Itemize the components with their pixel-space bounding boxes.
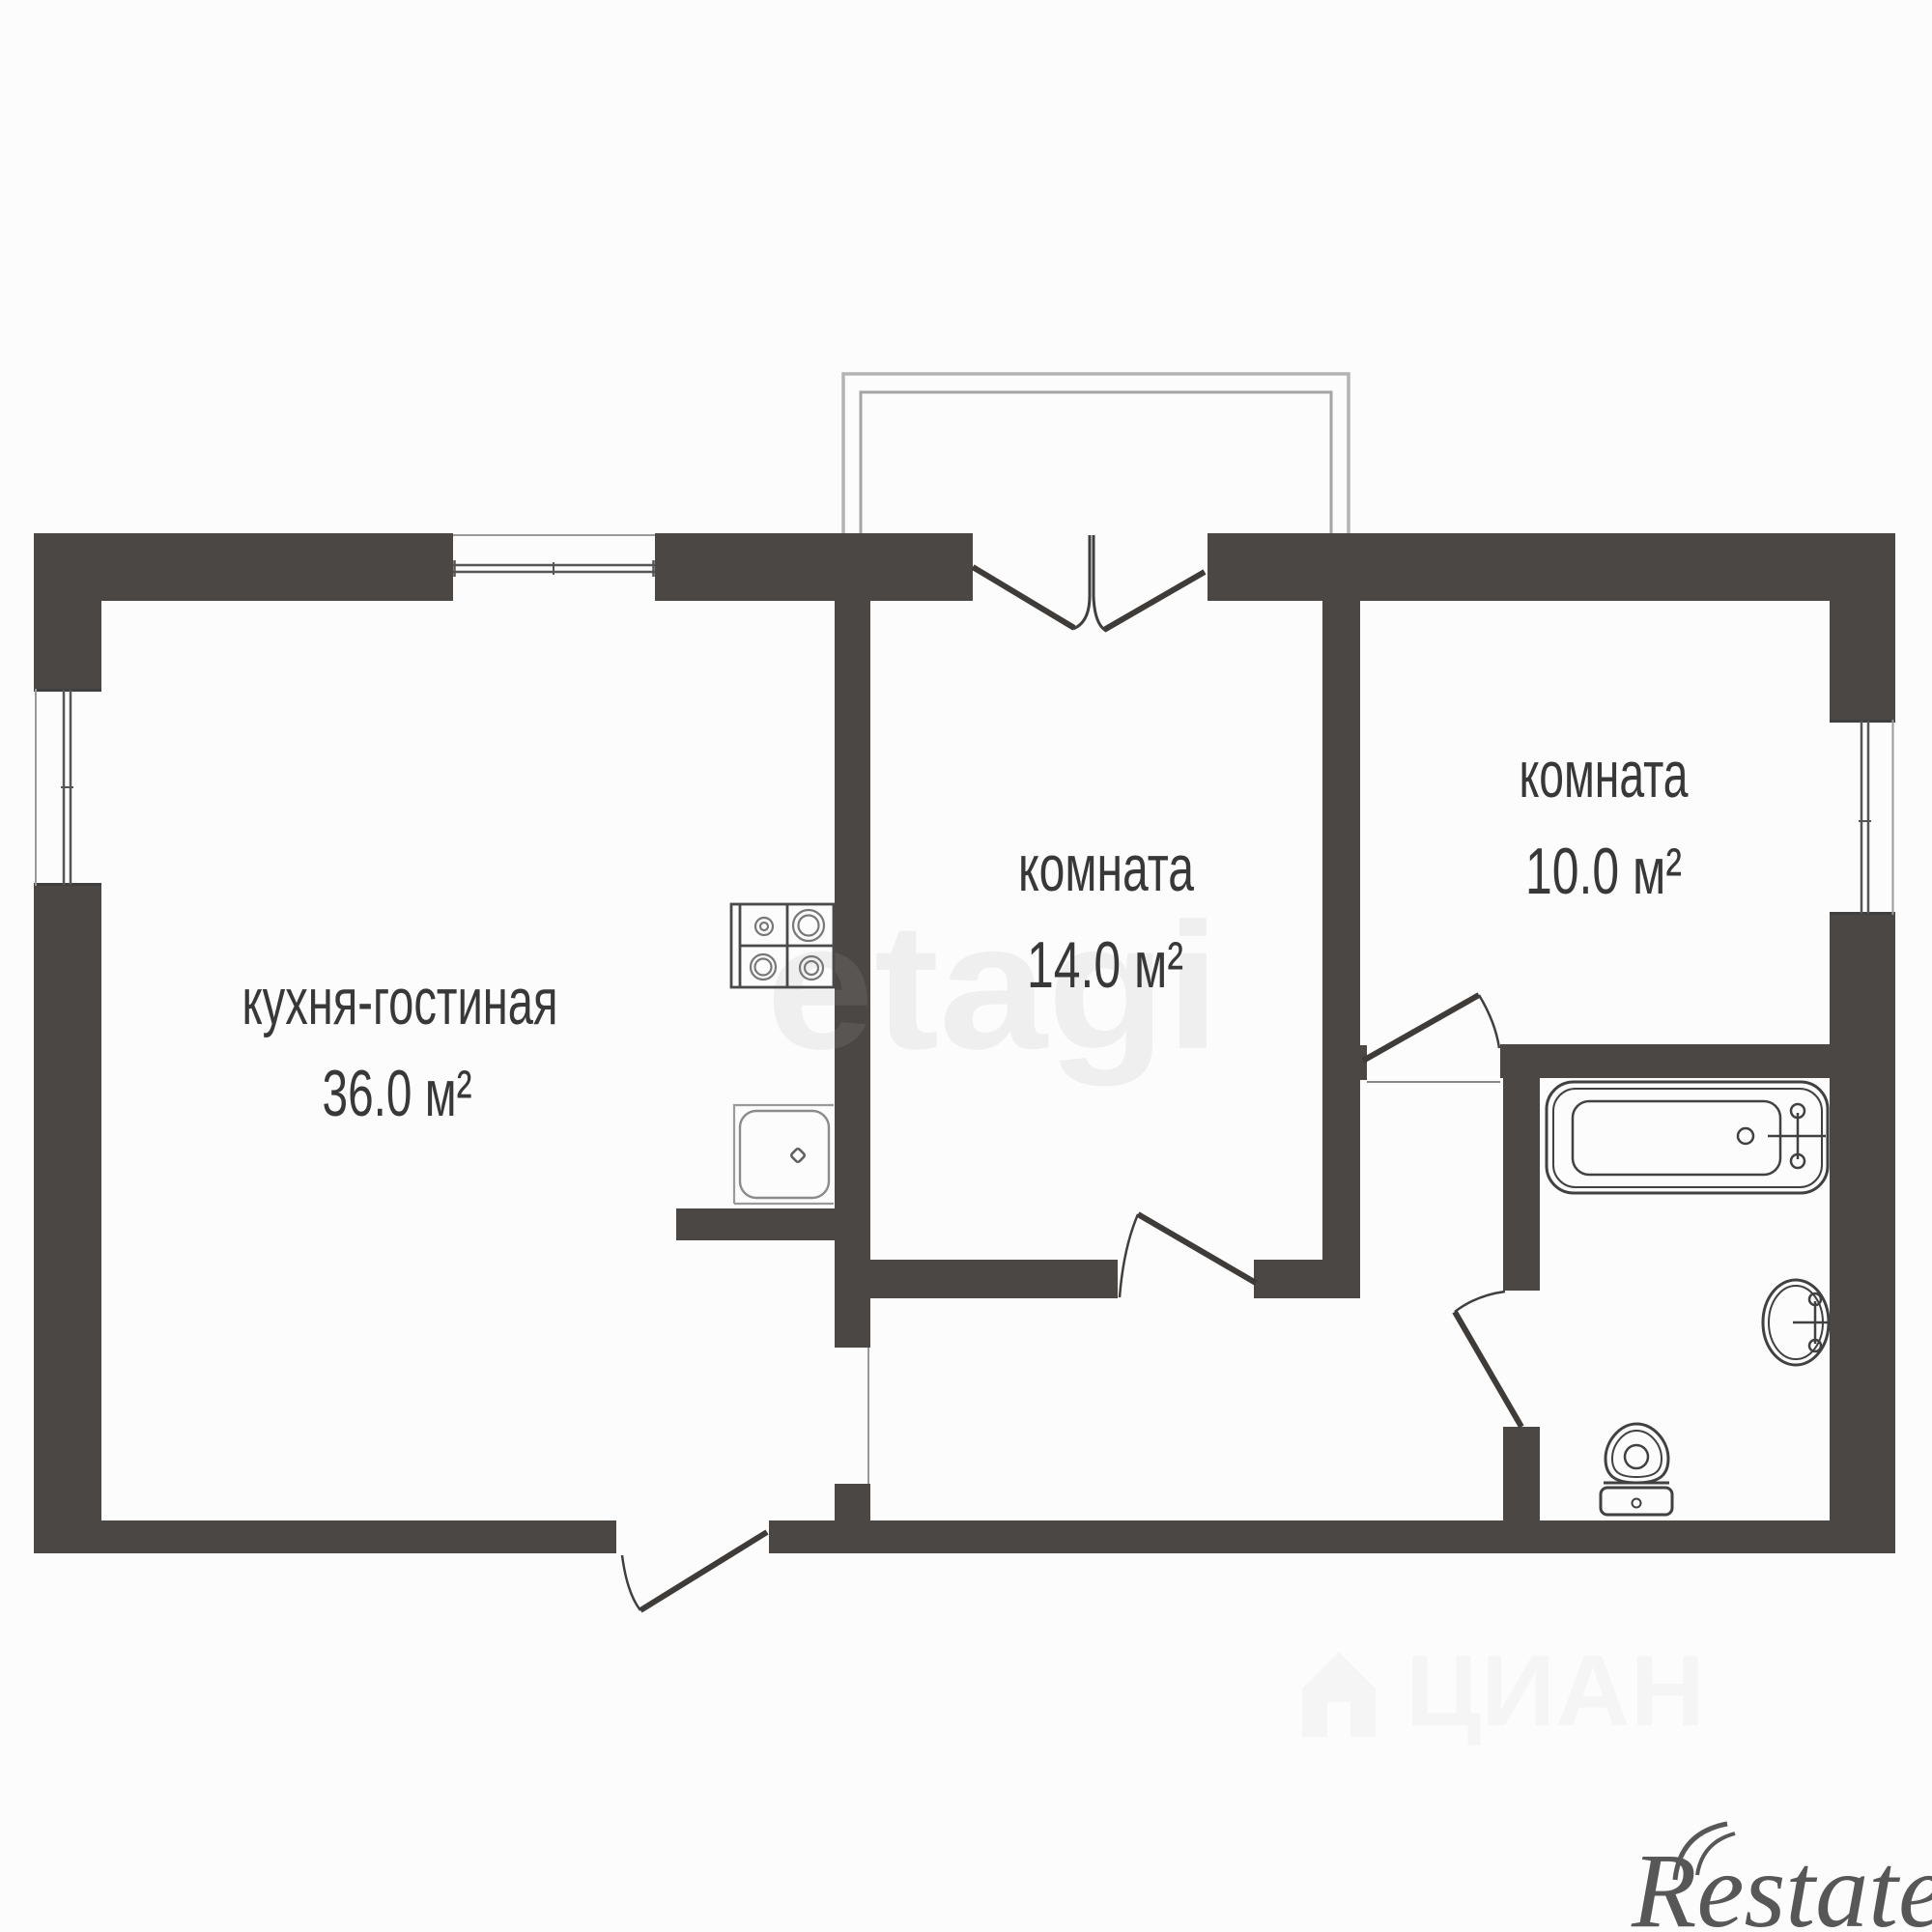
- svg-text:кухня-гостиная: кухня-гостиная: [242, 965, 558, 1038]
- svg-text:36.0 м²: 36.0 м²: [323, 1057, 472, 1130]
- svg-text:14.0 м²: 14.0 м²: [1027, 928, 1183, 1002]
- svg-text:комната: комната: [1018, 832, 1194, 905]
- svg-text:ЦИАН: ЦИАН: [1406, 1635, 1705, 1747]
- svg-text:Restate: Restate: [1631, 1832, 1932, 1932]
- svg-text:комната: комната: [1520, 738, 1689, 811]
- svg-text:10.0 м²: 10.0 м²: [1525, 835, 1682, 908]
